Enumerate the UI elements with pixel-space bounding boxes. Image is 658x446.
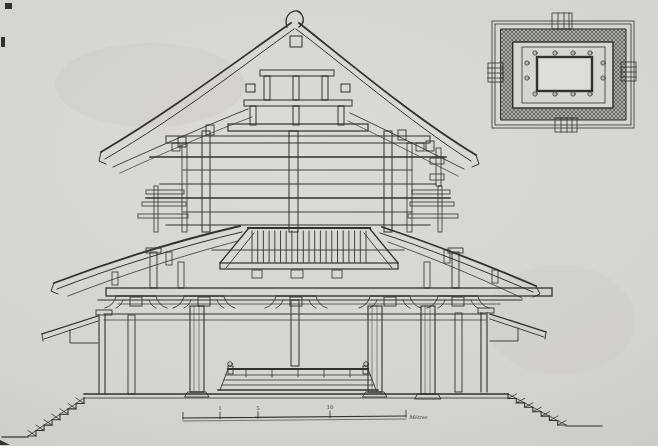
lower-roof xyxy=(51,226,540,298)
scale-bar: 1510 Mètres xyxy=(183,404,427,421)
altar-rail-ticks xyxy=(246,370,350,377)
central-post xyxy=(291,300,299,366)
temple-cross-section-drawing: 1510 Mètres xyxy=(0,0,658,446)
gable-frame xyxy=(228,36,368,131)
scanned-page: 1510 Mètres xyxy=(0,0,658,446)
right-interior-column xyxy=(368,306,382,392)
ground-floor xyxy=(42,300,546,399)
left-interior-column xyxy=(190,306,204,392)
scale-unit-label: Mètres xyxy=(409,414,427,420)
coved-ceiling-slats xyxy=(212,228,404,269)
scan-specks xyxy=(0,3,12,445)
svg-text:10: 10 xyxy=(327,404,333,410)
svg-text:5: 5 xyxy=(256,405,259,411)
stairs-right xyxy=(508,394,602,426)
svg-text:1: 1 xyxy=(218,405,221,411)
floor-plan-inset xyxy=(488,13,636,132)
right-striated-column xyxy=(421,306,435,394)
plan-inner-sanctum xyxy=(537,57,592,91)
stairs-left xyxy=(2,398,84,437)
ceiling-slats xyxy=(252,231,366,262)
